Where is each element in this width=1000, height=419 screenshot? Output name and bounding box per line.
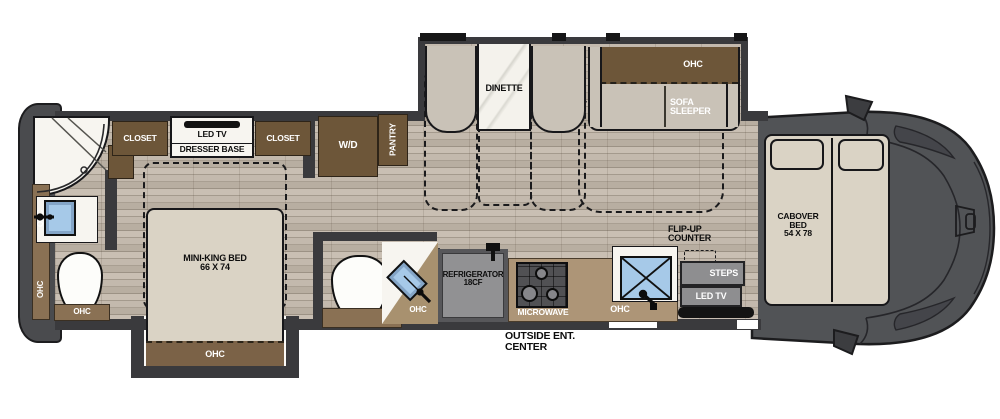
exterior-compartment-opening — [609, 321, 657, 328]
kitchen-sink — [620, 256, 672, 300]
dinette-label: DINETTE — [477, 82, 531, 96]
outside-ent-center-label: OUTSIDE ENT. CENTER — [505, 329, 595, 355]
burner-icon — [535, 267, 548, 280]
rv-floorplan: OHC OHC OHC CLOSET LED TV DRESSER BASE C… — [0, 0, 1000, 419]
burner-icon — [546, 288, 559, 301]
cabover-mattress-seam — [831, 138, 833, 302]
bedroom-tv-label: LED TV — [172, 127, 252, 141]
fridge-vent-icon — [486, 243, 500, 251]
wall-top-front — [744, 111, 768, 121]
cabover-bed-label: CABOVER BED 54 X 78 — [768, 204, 828, 246]
slide-latch-icon — [552, 33, 566, 41]
dinette-bench-right — [531, 46, 586, 133]
wall-halfbath-top — [313, 232, 437, 241]
sofa-seat-seam — [664, 86, 666, 127]
tv-dresser-base: LED TV DRESSER BASE — [170, 116, 254, 158]
refrigerator-size-text: 18CF — [464, 279, 483, 287]
flip-up-counter-label: FLIP-UP COUNTER — [668, 222, 720, 246]
bath-toilet-ohc: OHC — [54, 304, 110, 321]
dinette-bench-left — [425, 46, 477, 133]
closet-left: CLOSET — [112, 121, 168, 156]
pillow — [838, 139, 884, 171]
entry-tv-icon — [678, 307, 754, 318]
halfbath-corner-counter: OHC — [382, 242, 438, 324]
entry-led-tv: LED TV — [680, 286, 742, 307]
mini-king-bed-label: MINI-KING BED 66 X 74 — [150, 248, 280, 278]
slide-latch-icon — [606, 33, 620, 41]
counter-text: COUNTER — [668, 234, 711, 243]
bath-ohc-upper-label: OHC — [32, 196, 50, 240]
microwave-label: MICROWAVE — [512, 305, 574, 319]
bed-slide-ohc: OHC — [146, 341, 284, 366]
bath-ohc-lower-label: OHC — [32, 266, 50, 312]
fridge-vent-stem — [491, 250, 495, 261]
refrigerator-label: REFRIGERATOR 18CF — [440, 263, 506, 295]
slide-latch-icon — [734, 33, 747, 41]
kitchen-ohc-label: OHC — [598, 303, 642, 316]
sleeper-text: SLEEPER — [670, 107, 711, 116]
slide-latch-icon — [420, 33, 466, 41]
pantry: PANTRY — [378, 114, 408, 166]
pillow — [770, 139, 824, 170]
wall-bath-bedroom-divider — [105, 170, 117, 250]
dresser-base-label: DRESSER BASE — [172, 143, 252, 156]
sofa-sleeper-label: SOFA SLEEPER — [670, 91, 726, 123]
cabover-size-text: 54 X 78 — [784, 229, 812, 238]
entry-door-opening — [737, 320, 758, 329]
entry-steps: STEPS — [680, 261, 745, 286]
sofa-armrest-left — [590, 47, 602, 127]
outside-center-text: CENTER — [505, 342, 547, 353]
sofa-sleeper: OHC SOFA SLEEPER — [588, 47, 740, 131]
sofa-ohc-label: OHC — [668, 53, 718, 77]
burner-icon — [521, 285, 538, 302]
bed-size-text: 66 X 74 — [200, 263, 230, 272]
washer-dryer: W/D — [318, 116, 378, 177]
sofa-armrest-right — [726, 84, 738, 127]
closet-right: CLOSET — [255, 121, 311, 156]
halfbath-ohc-label: OHC — [398, 303, 438, 317]
